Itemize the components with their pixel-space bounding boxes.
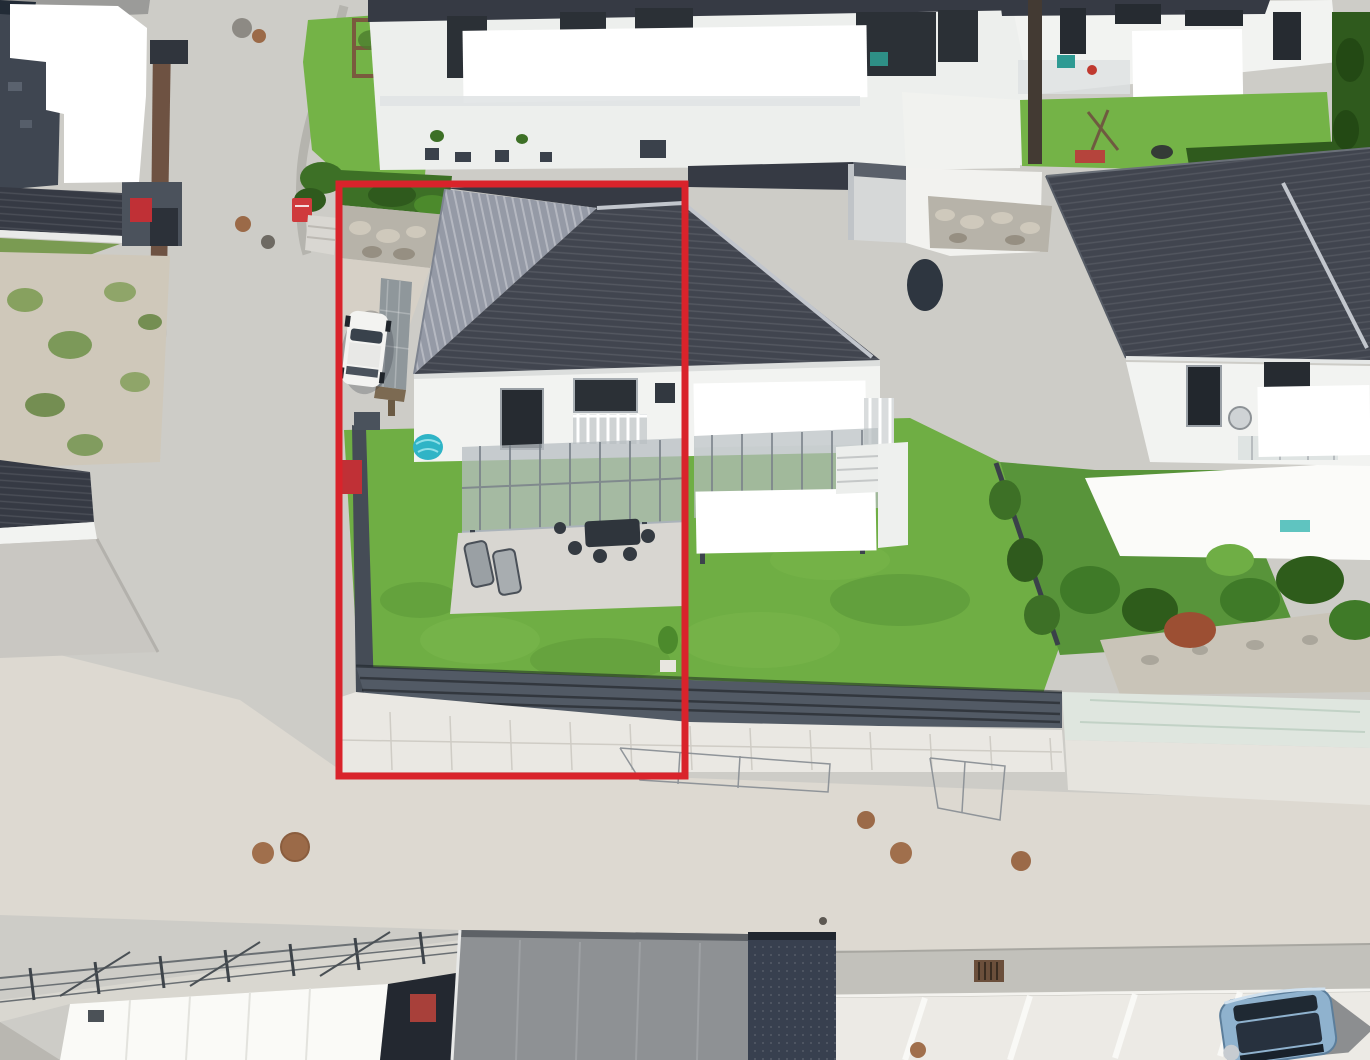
roof-vent (88, 1010, 104, 1022)
hedge-shade (1333, 110, 1359, 150)
balcony (573, 414, 647, 444)
metal-post (848, 164, 854, 240)
red-door (410, 994, 436, 1022)
privacy-mask (463, 25, 868, 103)
dark-fence-strip (1028, 0, 1042, 164)
plant-pot (516, 134, 528, 144)
terrace-furniture (20, 120, 32, 128)
navy-roof-texture (748, 932, 836, 1060)
aerial-photo-stage (0, 0, 1370, 1060)
teal-object (1057, 55, 1075, 68)
garage-flat-roof (452, 930, 748, 1060)
street-bench (150, 40, 188, 64)
entry-steps (305, 215, 338, 255)
garden-gate (354, 412, 380, 430)
planter (660, 660, 676, 672)
privacy-mask (1257, 385, 1370, 457)
teal-strip (1280, 520, 1310, 532)
teal-object (870, 52, 888, 66)
red-object (1087, 65, 1097, 75)
small-plant (658, 626, 678, 654)
glass-balustrade (380, 96, 860, 106)
shadow-blob (907, 259, 943, 311)
red-wheelie-bin (340, 460, 362, 494)
white-path (902, 92, 1020, 170)
car-roof (347, 342, 381, 368)
window-wide (1264, 362, 1310, 388)
red-bin (130, 198, 152, 222)
navy-roof-edge (748, 932, 836, 940)
terrace-furniture (8, 82, 22, 91)
plant-pot (430, 130, 444, 142)
aerial-photo (0, 0, 1370, 1060)
window-upper (574, 379, 637, 412)
kiddie-pool (413, 434, 443, 460)
window-small (655, 383, 675, 403)
window-tall (501, 389, 543, 449)
satellite-dish (1229, 407, 1251, 429)
bin-enclosure-inner (150, 208, 178, 246)
carport-post (388, 400, 395, 416)
privacy-mask (695, 488, 876, 553)
window-tall (1187, 366, 1221, 426)
hedge-shade (1336, 38, 1364, 82)
roof-texture (0, 187, 122, 236)
drain-grate (974, 960, 1004, 982)
red-toy-vehicle (1075, 150, 1105, 163)
garage-roof-band (688, 162, 853, 190)
